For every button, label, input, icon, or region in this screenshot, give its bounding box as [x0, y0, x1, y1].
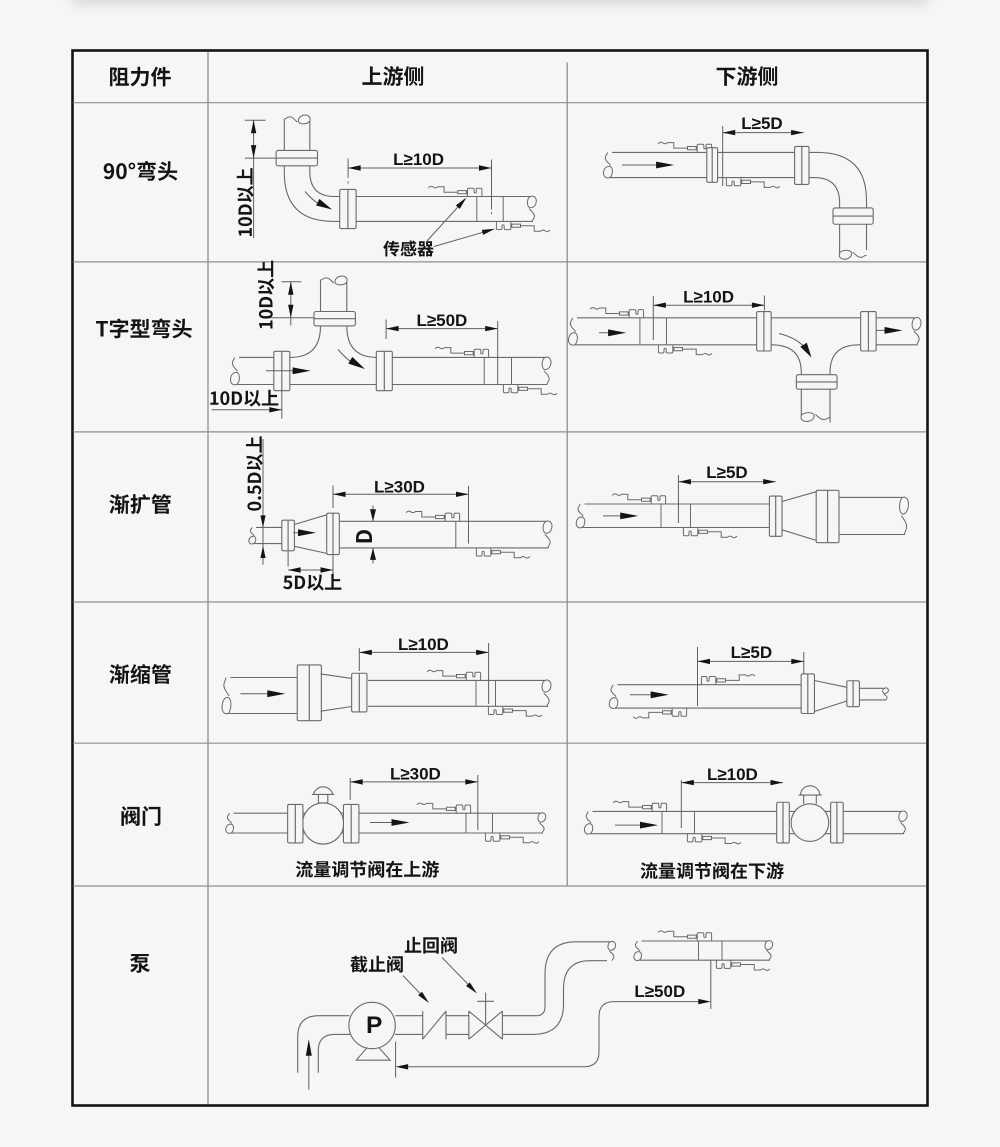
svg-text:L≥10D: L≥10D	[393, 150, 444, 169]
svg-text:L≥30D: L≥30D	[390, 765, 441, 784]
svg-text:L≥50D: L≥50D	[416, 311, 467, 330]
svg-text:L≥10D: L≥10D	[707, 765, 758, 784]
svg-text:L≥30D: L≥30D	[374, 477, 425, 496]
svg-text:L≥50D: L≥50D	[634, 982, 685, 1001]
svg-text:P: P	[366, 1012, 382, 1039]
svg-text:L≥10D: L≥10D	[398, 635, 449, 654]
svg-text:L≥5D: L≥5D	[741, 114, 782, 133]
svg-text:L≥10D: L≥10D	[683, 288, 734, 307]
svg-text:L≥5D: L≥5D	[706, 463, 747, 482]
svg-text:L≥5D: L≥5D	[731, 643, 772, 662]
